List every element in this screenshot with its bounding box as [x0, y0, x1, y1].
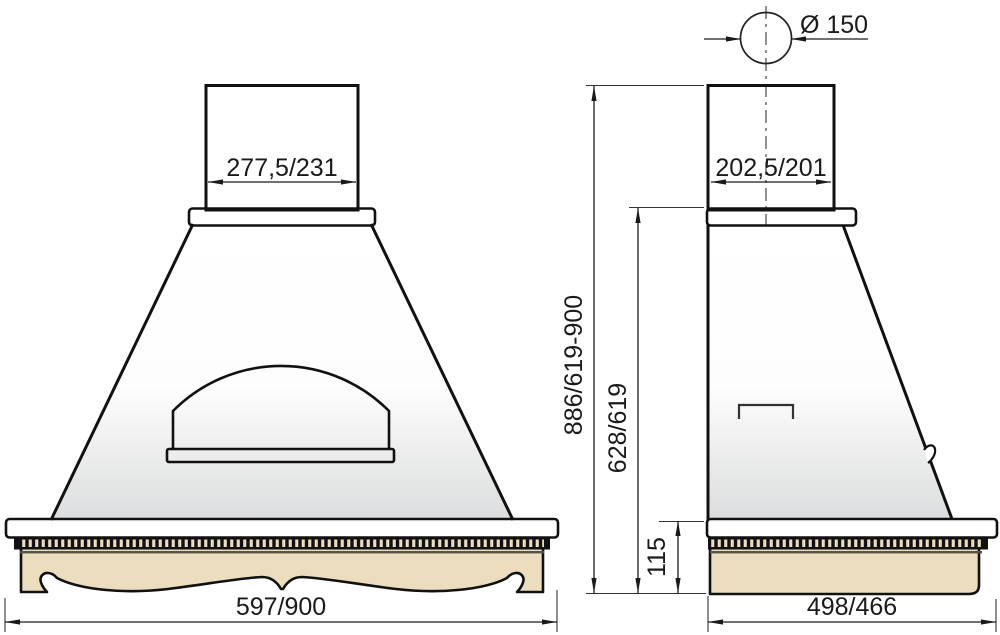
dim-label-front-base-width: 597/900 [236, 593, 326, 621]
dim-label-side-chimney-depth: 202,5/201 [715, 154, 826, 182]
dim-side-chimney-depth: 202,5/201 [711, 154, 831, 185]
dim-overall-height: 886/619-900 [560, 86, 706, 594]
dim-label-duct-diameter: Ø 150 [800, 11, 868, 39]
dim-front-base-width: 597/900 [5, 590, 557, 632]
front-apron [21, 549, 543, 592]
dim-base-trim-height: 115 [643, 521, 704, 593]
side-dentil-molding [708, 538, 988, 550]
front-dentil-left-cap [14, 538, 20, 550]
dim-label-overall-height: 886/619-900 [560, 295, 588, 435]
dim-label-front-chimney-width: 277,5/231 [226, 154, 337, 182]
dim-duct-diameter: Ø 150 [704, 11, 868, 42]
side-view [707, 6, 997, 594]
side-hood-body [708, 225, 952, 519]
dim-label-side-base-depth: 498/466 [807, 593, 897, 621]
range-hood-dimension-drawing: 277,5/231 597/900 Ø 150 202,5/201 [0, 0, 1000, 635]
side-chimney [708, 86, 834, 211]
side-molding-shadow-line [710, 551, 982, 553]
technical-drawing-canvas: 277,5/231 597/900 Ø 150 202,5/201 [0, 0, 1000, 635]
front-chimney [206, 86, 358, 211]
front-dentil-right-cap [544, 538, 550, 550]
side-apron [710, 549, 979, 594]
dim-hood-body-height: 628/619 [604, 208, 704, 594]
dim-label-base-trim-height: 115 [643, 537, 671, 577]
front-mantel-shelf [6, 519, 558, 538]
dim-label-hood-body-height: 628/619 [604, 383, 632, 473]
front-dentil-molding [14, 538, 550, 550]
dim-front-chimney-width: 277,5/231 [208, 154, 356, 185]
side-dentil-right-cap [982, 538, 988, 550]
side-mantel-shelf [707, 519, 997, 538]
front-molding-shadow-line [20, 551, 544, 553]
dim-side-base-depth: 498/466 [708, 593, 996, 632]
